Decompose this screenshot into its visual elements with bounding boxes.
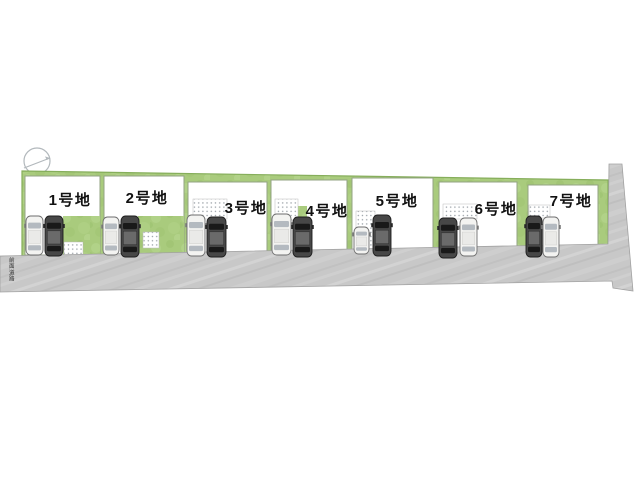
road-side-label: 前面道路 [9, 256, 15, 283]
car-roof [295, 232, 309, 245]
car-rear-window [28, 245, 41, 250]
car-top-view-dark [437, 218, 459, 258]
car-windshield [462, 224, 475, 230]
car-top-view-white [101, 217, 121, 255]
car-windshield [189, 222, 203, 228]
car-windshield [441, 225, 455, 231]
car-windshield [209, 224, 224, 230]
car-rear-window [528, 247, 540, 252]
car-top-view-white [458, 218, 479, 256]
car-top-view-dark [205, 217, 228, 257]
paved-approach [443, 204, 477, 219]
car-top-view-dark [43, 216, 65, 256]
paved-approach [64, 242, 83, 255]
car-top-view-white [24, 216, 45, 255]
lot-label: 2号地 [126, 189, 169, 207]
car-top-view-dark [371, 215, 393, 256]
car-windshield [47, 223, 61, 229]
lot-label: 7号地 [550, 192, 593, 210]
lot-label: 6号地 [475, 200, 518, 218]
car-roof [356, 237, 366, 246]
car-windshield [105, 223, 117, 229]
car-roof [189, 230, 202, 244]
car-rear-window [274, 245, 289, 250]
site-plan-drawing: 前面道路 1号地2号地3号地4号地5号地6号地7号地 [0, 0, 640, 480]
car-roof [462, 232, 474, 245]
car-top-view-white [185, 215, 207, 256]
car-top-view-white [270, 214, 293, 255]
lot-label: 4号地 [306, 202, 349, 220]
car-windshield [528, 223, 540, 229]
lot-label: 1号地 [49, 191, 92, 209]
car-windshield [123, 223, 137, 229]
car-windshield [356, 232, 367, 236]
car-roof [123, 231, 136, 245]
car-roof [105, 231, 116, 244]
car-top-view-dark [291, 217, 314, 257]
car-rear-window [189, 246, 203, 251]
site-plan-canvas: 前面道路 1号地2号地3号地4号地5号地6号地7号地 [0, 0, 640, 480]
car-rear-window [356, 247, 367, 251]
car-top-view-dark [119, 216, 141, 257]
car-top-view-dark [524, 216, 544, 257]
paved-approach [143, 232, 159, 248]
lot-label: 5号地 [376, 192, 419, 210]
car-roof [209, 232, 223, 245]
car-rear-window [105, 246, 117, 251]
car-roof [47, 231, 60, 244]
car-roof [274, 229, 288, 243]
car-rear-window [123, 247, 137, 252]
car-roof [375, 230, 388, 244]
car-windshield [375, 222, 389, 228]
car-roof [545, 232, 556, 245]
car-windshield [28, 223, 41, 229]
car-rear-window [441, 248, 455, 253]
car-top-view-white-compact [352, 227, 371, 254]
car-windshield [274, 221, 289, 227]
car-roof [528, 231, 539, 245]
car-rear-window [462, 247, 475, 252]
car-windshield [295, 224, 310, 230]
car-top-view-white [541, 217, 561, 257]
car-rear-window [375, 246, 389, 251]
car-rear-window [545, 247, 557, 252]
lot-label: 3号地 [225, 199, 268, 217]
car-rear-window [209, 247, 224, 252]
car-roof [28, 230, 40, 243]
car-windshield [545, 224, 557, 230]
car-roof [441, 233, 454, 246]
car-rear-window [47, 246, 61, 251]
car-rear-window [295, 247, 310, 252]
north-compass-icon [24, 148, 50, 174]
